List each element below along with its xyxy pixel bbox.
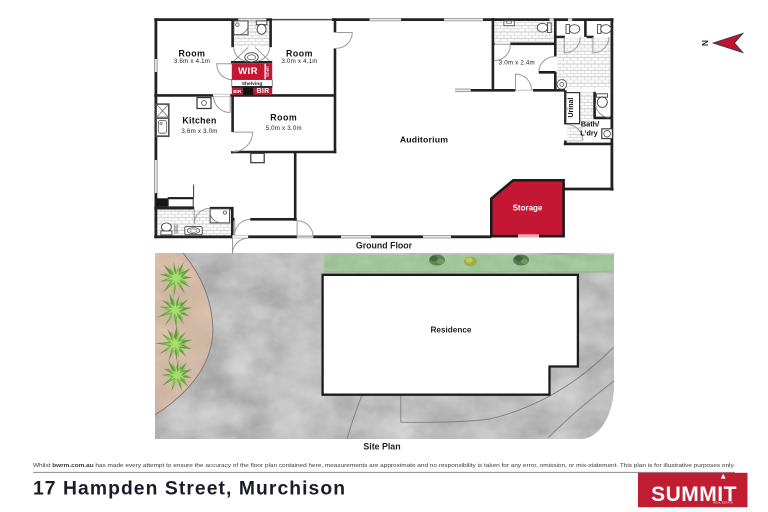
svg-text:Bath/: Bath/ xyxy=(581,119,599,128)
svg-text:REAL ESTATE: REAL ESTATE xyxy=(713,501,733,505)
svg-text:Ground Floor: Ground Floor xyxy=(356,241,413,251)
svg-text:BIR: BIR xyxy=(256,87,269,95)
svg-text:N: N xyxy=(700,40,710,46)
svg-text:17 Hampden Street, Murchison: 17 Hampden Street, Murchison xyxy=(33,479,345,500)
svg-text:Shelving: Shelving xyxy=(242,81,262,87)
svg-text:L’dry: L’dry xyxy=(580,129,598,138)
svg-text:BIR: BIR xyxy=(233,89,242,94)
svg-text:Room: Room xyxy=(179,48,206,58)
svg-text:Storage: Storage xyxy=(513,204,543,213)
svg-text:Urinal: Urinal xyxy=(568,98,575,118)
svg-text:WIR: WIR xyxy=(238,66,258,77)
svg-text:Auditorium: Auditorium xyxy=(400,134,448,144)
svg-text:3.6m x 4.1m: 3.6m x 4.1m xyxy=(174,58,210,65)
svg-text:Room: Room xyxy=(270,113,297,123)
svg-text:3.0m x 4.1m: 3.0m x 4.1m xyxy=(281,58,317,65)
svg-text:3.6m x 3.0m: 3.6m x 3.0m xyxy=(181,128,217,135)
svg-text:5.0m x 3.0m: 5.0m x 3.0m xyxy=(266,125,302,132)
svg-text:Site Plan: Site Plan xyxy=(363,442,400,452)
svg-text:Kitchen: Kitchen xyxy=(182,115,216,125)
svg-text:3.0m x 2.4m: 3.0m x 2.4m xyxy=(499,60,535,67)
svg-text:Room: Room xyxy=(286,48,313,58)
svg-text:Shelf: Shelf xyxy=(265,66,271,78)
svg-text:Residence: Residence xyxy=(431,325,472,334)
svg-text:Whilst bwrm.com.au has made ev: Whilst bwrm.com.au has made every attemp… xyxy=(33,463,736,469)
